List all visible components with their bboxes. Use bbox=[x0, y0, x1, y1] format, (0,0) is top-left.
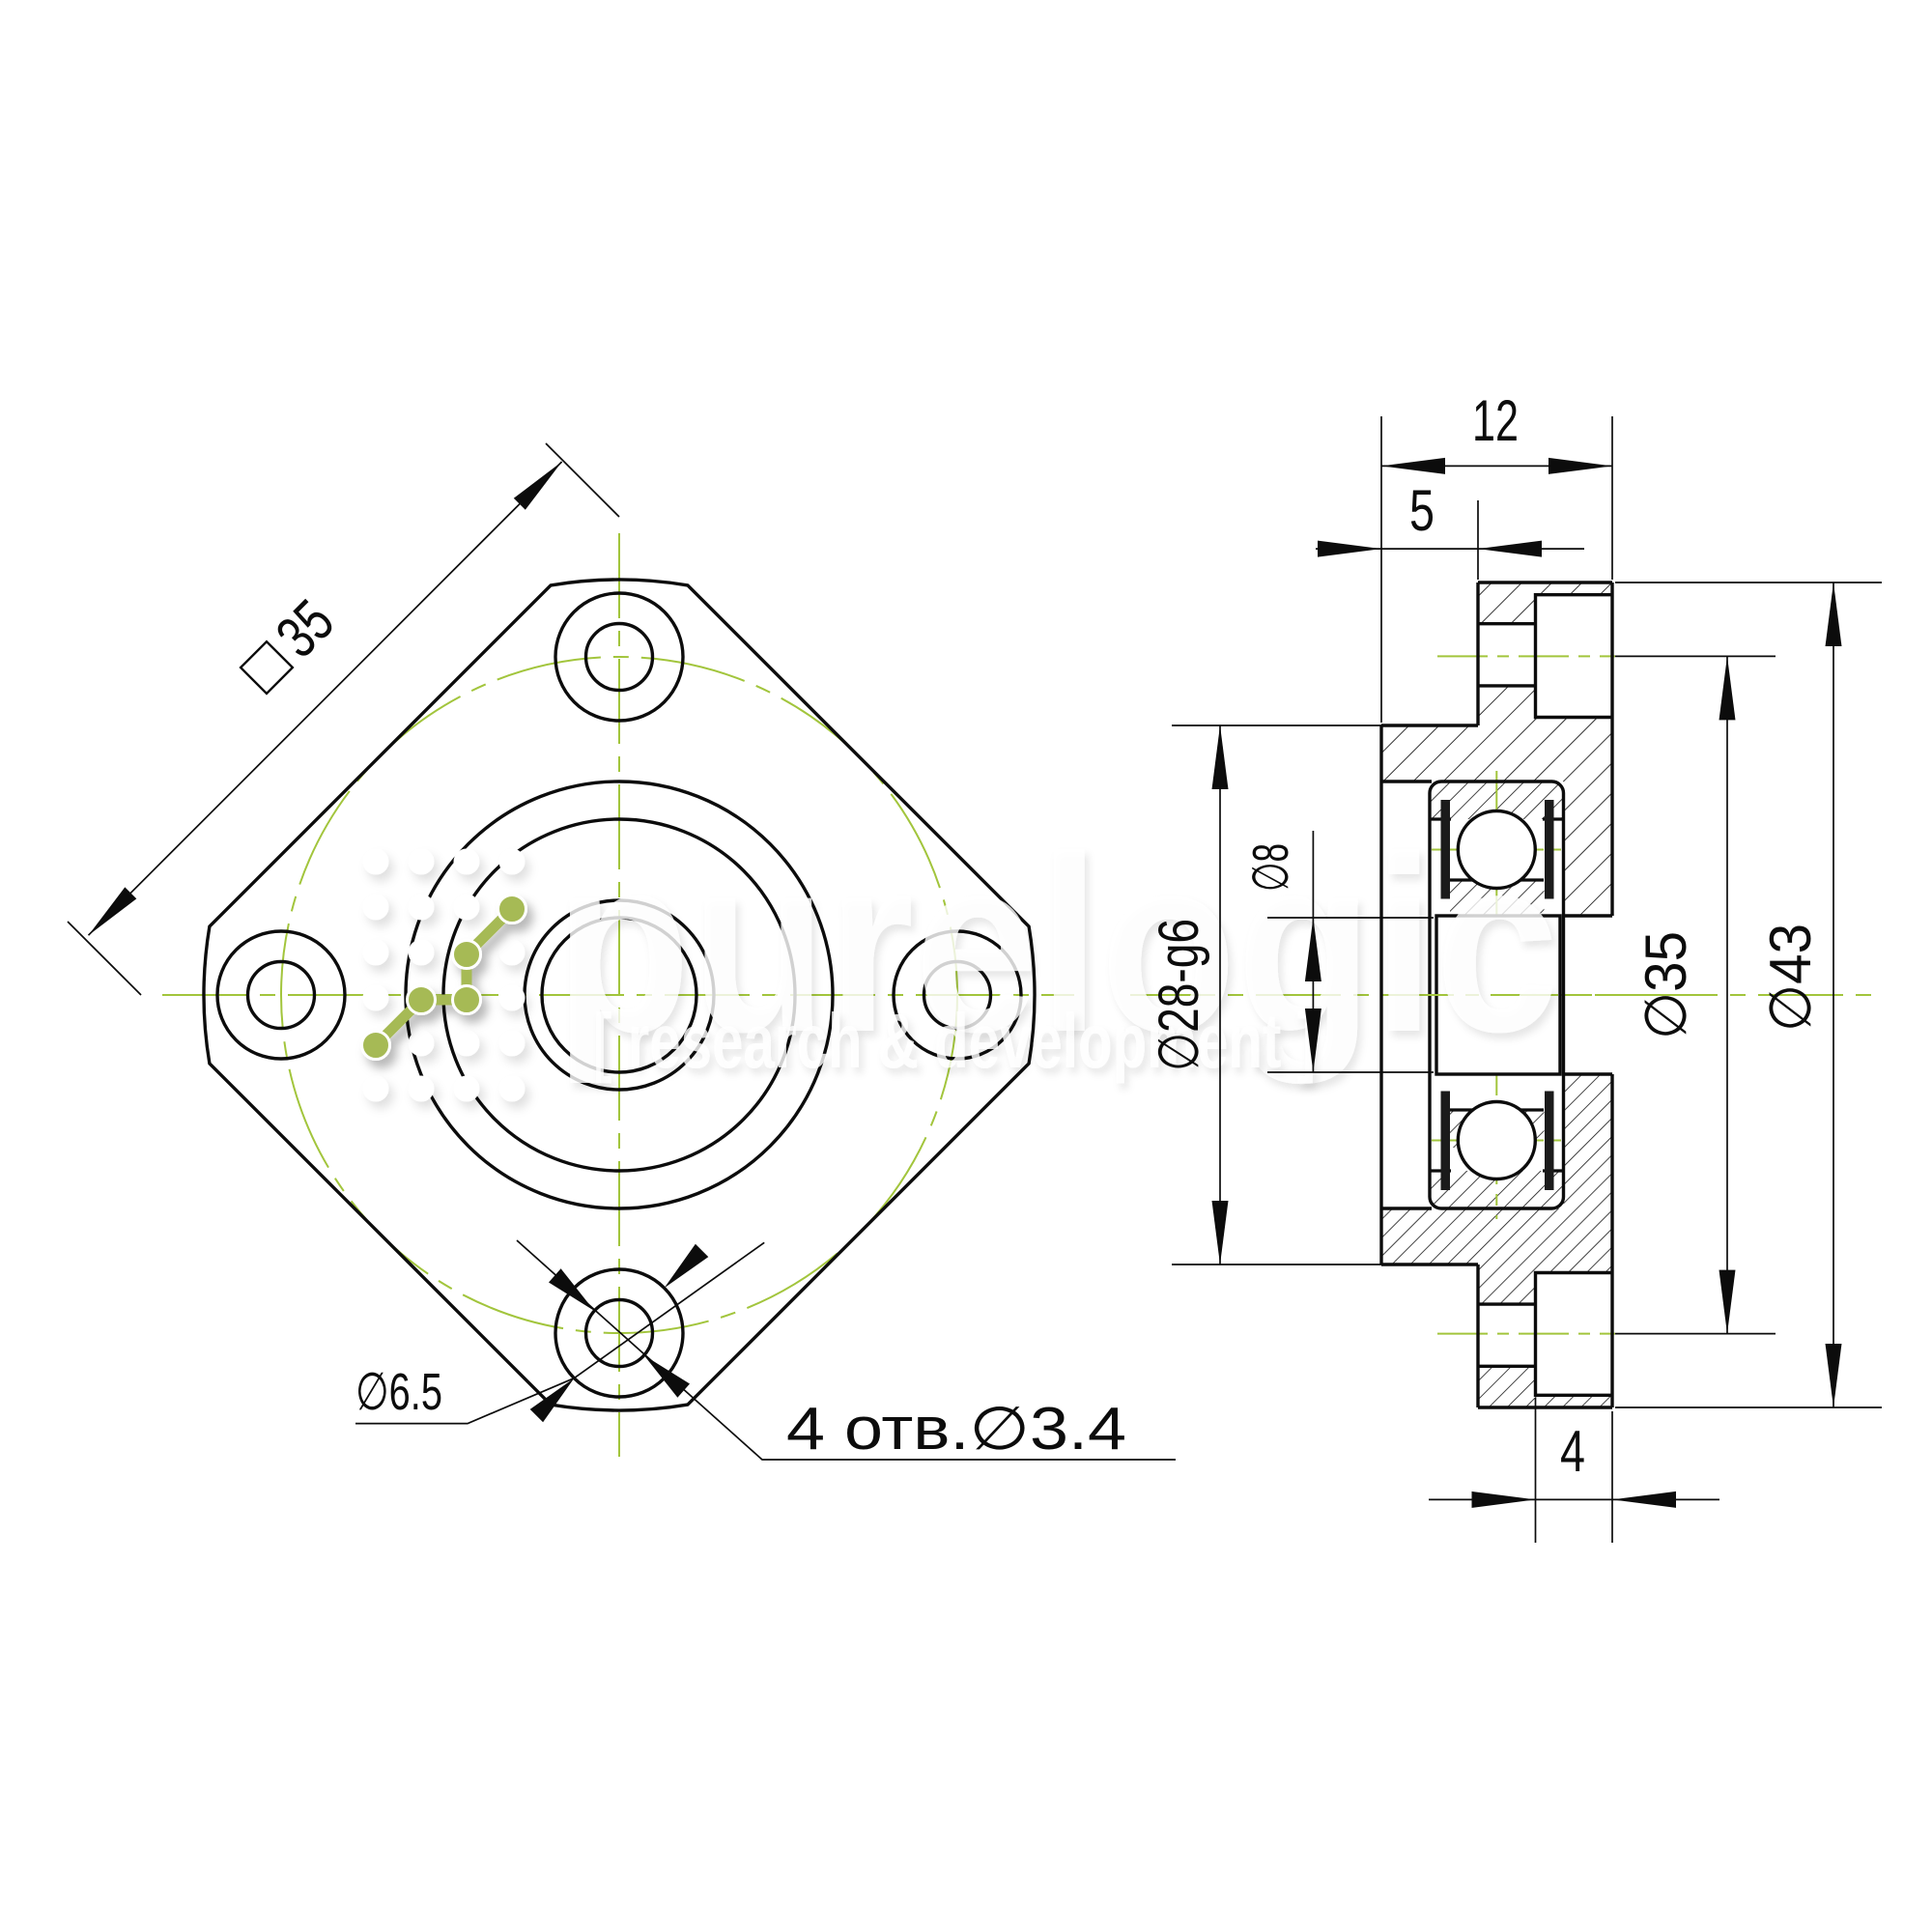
svg-text:4: 4 bbox=[1560, 1419, 1585, 1484]
svg-text:∅28-g6: ∅28-g6 bbox=[1148, 919, 1210, 1071]
svg-text:4 отв.∅3.4: 4 отв.∅3.4 bbox=[786, 1396, 1126, 1463]
svg-text:∅6.5: ∅6.5 bbox=[355, 1363, 442, 1421]
svg-text:∅8: ∅8 bbox=[1243, 843, 1299, 892]
svg-text:5: 5 bbox=[1409, 478, 1435, 543]
svg-text:12: 12 bbox=[1472, 388, 1519, 453]
svg-text:∅43: ∅43 bbox=[1758, 923, 1823, 1032]
svg-text:∅35: ∅35 bbox=[1634, 931, 1698, 1039]
